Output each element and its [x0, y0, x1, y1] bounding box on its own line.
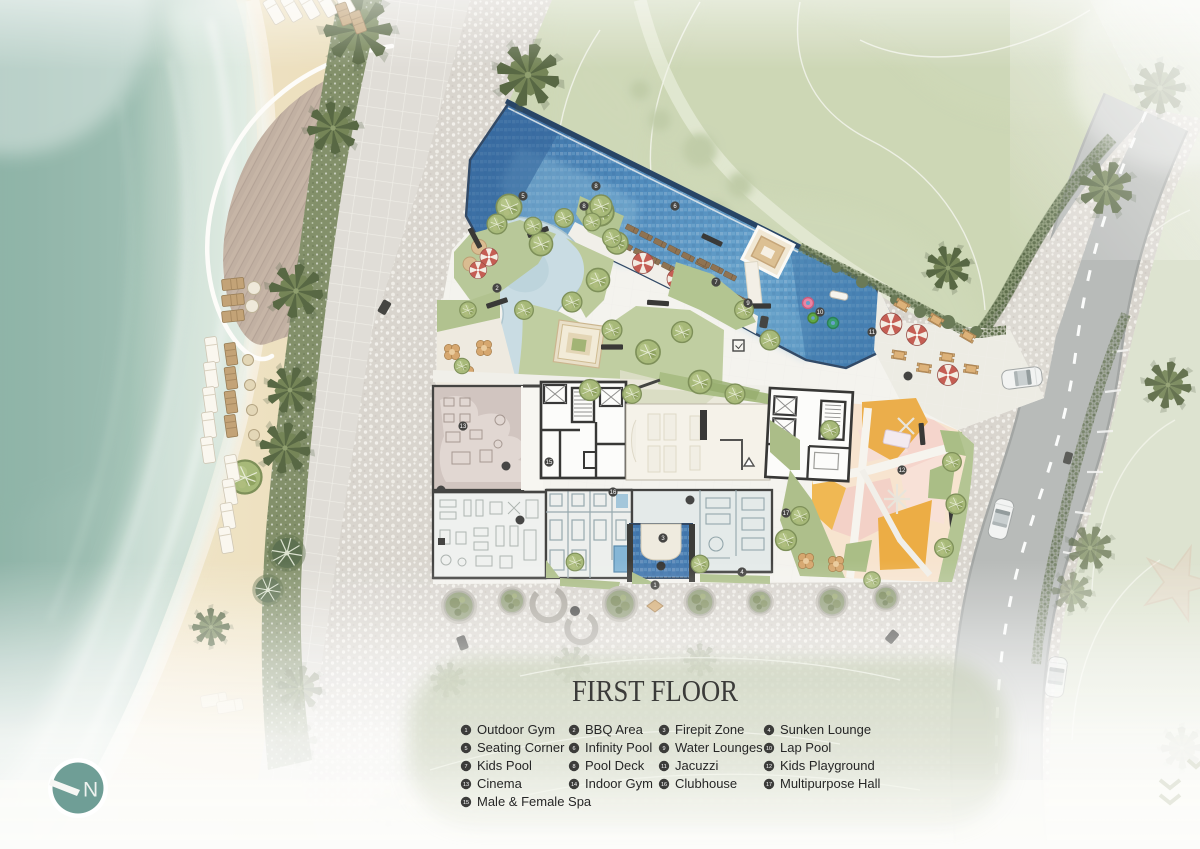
- svg-text:Outdoor Gym: Outdoor Gym: [477, 722, 555, 737]
- svg-text:Pool Deck: Pool Deck: [585, 758, 645, 773]
- svg-text:17: 17: [766, 782, 772, 788]
- svg-text:12: 12: [766, 764, 772, 770]
- svg-text:FIRST FLOOR: FIRST FLOOR: [572, 673, 738, 708]
- svg-text:Water Lounges: Water Lounges: [675, 740, 763, 755]
- svg-text:5: 5: [464, 746, 467, 752]
- svg-text:3: 3: [662, 728, 665, 734]
- svg-text:Kids Pool: Kids Pool: [477, 758, 532, 773]
- svg-text:Cinema: Cinema: [477, 776, 523, 791]
- svg-text:11: 11: [661, 764, 667, 770]
- svg-text:9: 9: [662, 746, 665, 752]
- svg-text:N: N: [83, 779, 98, 802]
- svg-text:Infinity Pool: Infinity Pool: [585, 740, 652, 755]
- svg-text:10: 10: [766, 746, 772, 752]
- svg-text:Kids Playground: Kids Playground: [780, 758, 875, 773]
- svg-text:2: 2: [572, 728, 575, 734]
- svg-text:16: 16: [661, 782, 667, 788]
- svg-text:15: 15: [463, 800, 469, 806]
- svg-text:Male & Female Spa: Male & Female Spa: [477, 794, 592, 809]
- svg-text:Jacuzzi: Jacuzzi: [675, 758, 718, 773]
- svg-text:Clubhouse: Clubhouse: [675, 776, 737, 791]
- svg-text:Seating Corner: Seating Corner: [477, 740, 565, 755]
- svg-text:6: 6: [572, 746, 575, 752]
- svg-text:14: 14: [571, 782, 577, 788]
- svg-text:7: 7: [464, 764, 467, 770]
- svg-text:Sunken Lounge: Sunken Lounge: [780, 722, 871, 737]
- svg-text:13: 13: [463, 782, 469, 788]
- svg-text:Indoor Gym: Indoor Gym: [585, 776, 653, 791]
- svg-text:Lap Pool: Lap Pool: [780, 740, 831, 755]
- svg-text:BBQ Area: BBQ Area: [585, 722, 644, 737]
- svg-text:4: 4: [767, 728, 770, 734]
- svg-text:Firepit Zone: Firepit Zone: [675, 722, 744, 737]
- svg-text:1: 1: [464, 728, 467, 734]
- svg-text:Multipurpose Hall: Multipurpose Hall: [780, 776, 881, 791]
- svg-text:8: 8: [572, 764, 575, 770]
